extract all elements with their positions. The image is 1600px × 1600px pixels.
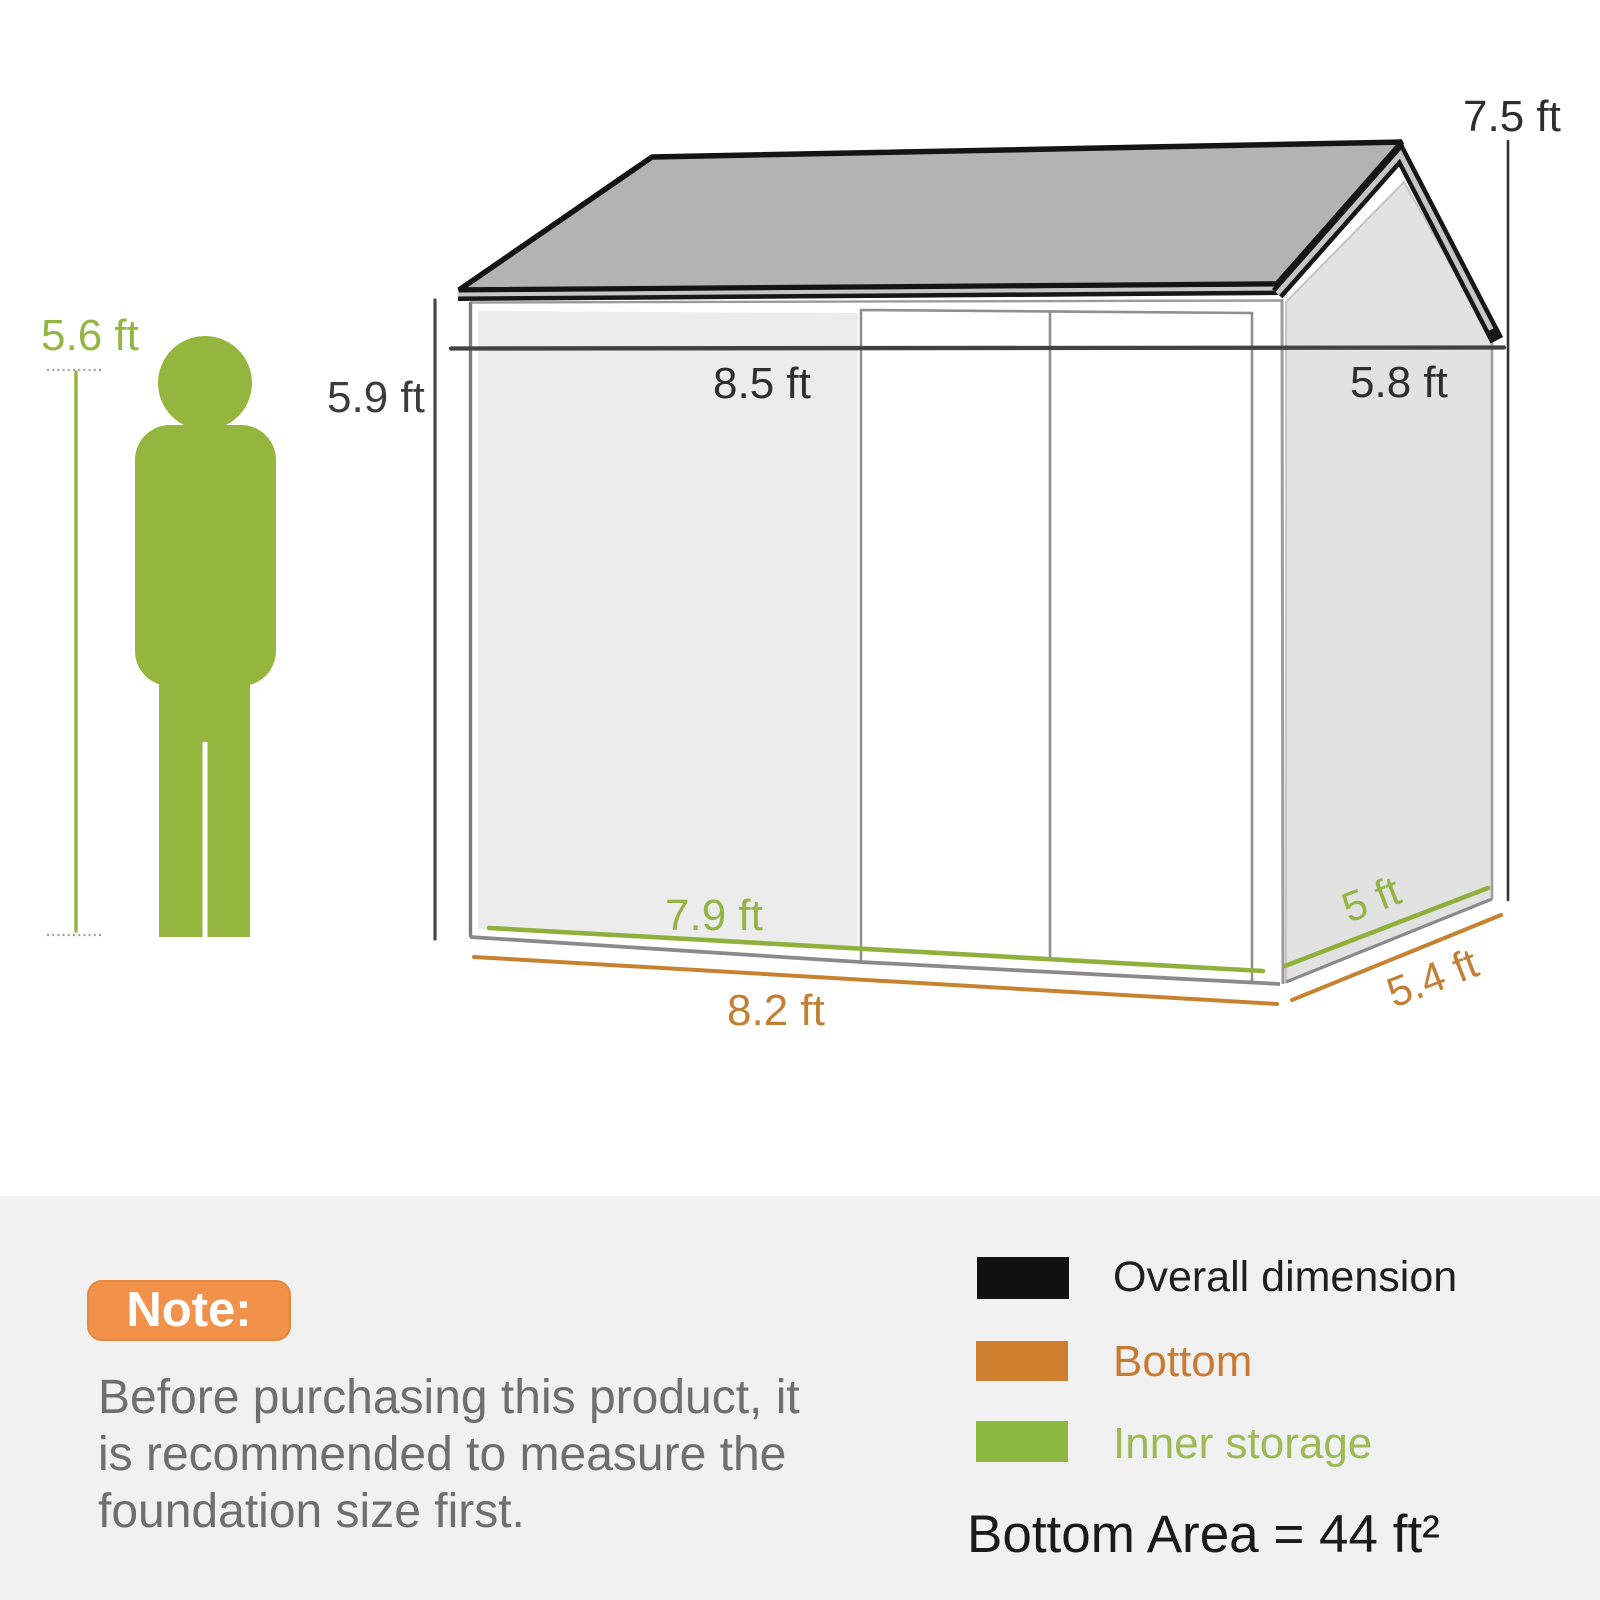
svg-text:8.2 ft: 8.2 ft: [727, 986, 825, 1035]
svg-text:Inner storage: Inner storage: [1113, 1419, 1372, 1468]
svg-text:foundation size first.: foundation size first.: [98, 1485, 525, 1538]
svg-text:Overall dimension: Overall dimension: [1113, 1253, 1457, 1301]
svg-text:Before purchasing this product: Before purchasing this product, it: [98, 1371, 800, 1424]
svg-text:8.5 ft: 8.5 ft: [713, 359, 811, 408]
svg-text:Note:: Note:: [126, 1283, 251, 1337]
svg-text:5.9 ft: 5.9 ft: [327, 373, 425, 422]
svg-text:is recommended to measure the: is recommended to measure the: [98, 1428, 786, 1481]
svg-text:Bottom Area = 44 ft²: Bottom Area = 44 ft²: [967, 1505, 1440, 1564]
svg-text:5.6 ft: 5.6 ft: [41, 311, 139, 360]
svg-text:7.5 ft: 7.5 ft: [1463, 92, 1561, 141]
svg-text:7.9 ft: 7.9 ft: [665, 891, 763, 940]
svg-text:5.8 ft: 5.8 ft: [1350, 358, 1448, 407]
svg-text:Bottom: Bottom: [1113, 1337, 1252, 1386]
